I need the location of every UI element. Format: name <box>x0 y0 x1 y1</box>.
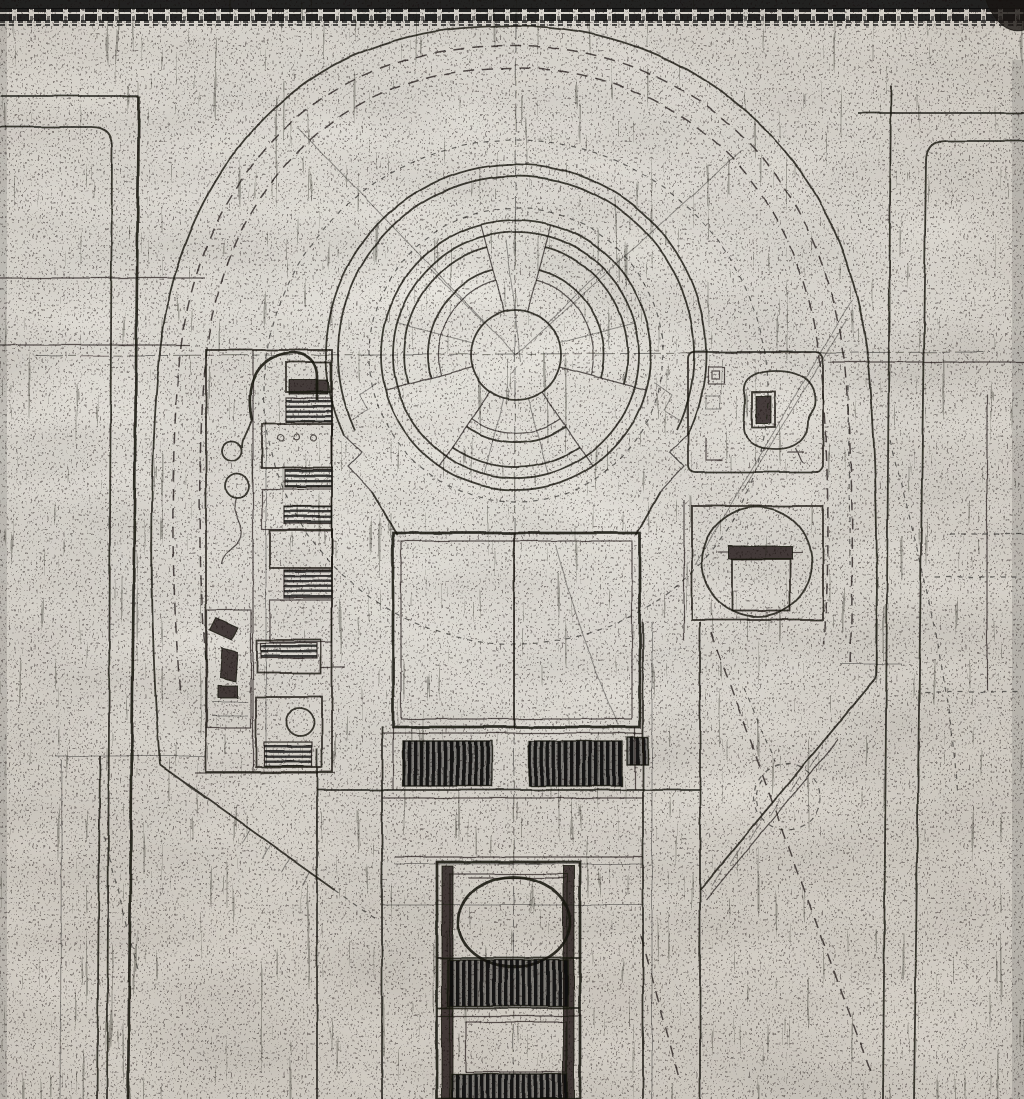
blueprint-scan <box>0 0 1024 1099</box>
scanned-drawing-page <box>0 0 1024 1099</box>
scan-speckle-noise <box>0 0 1024 1099</box>
